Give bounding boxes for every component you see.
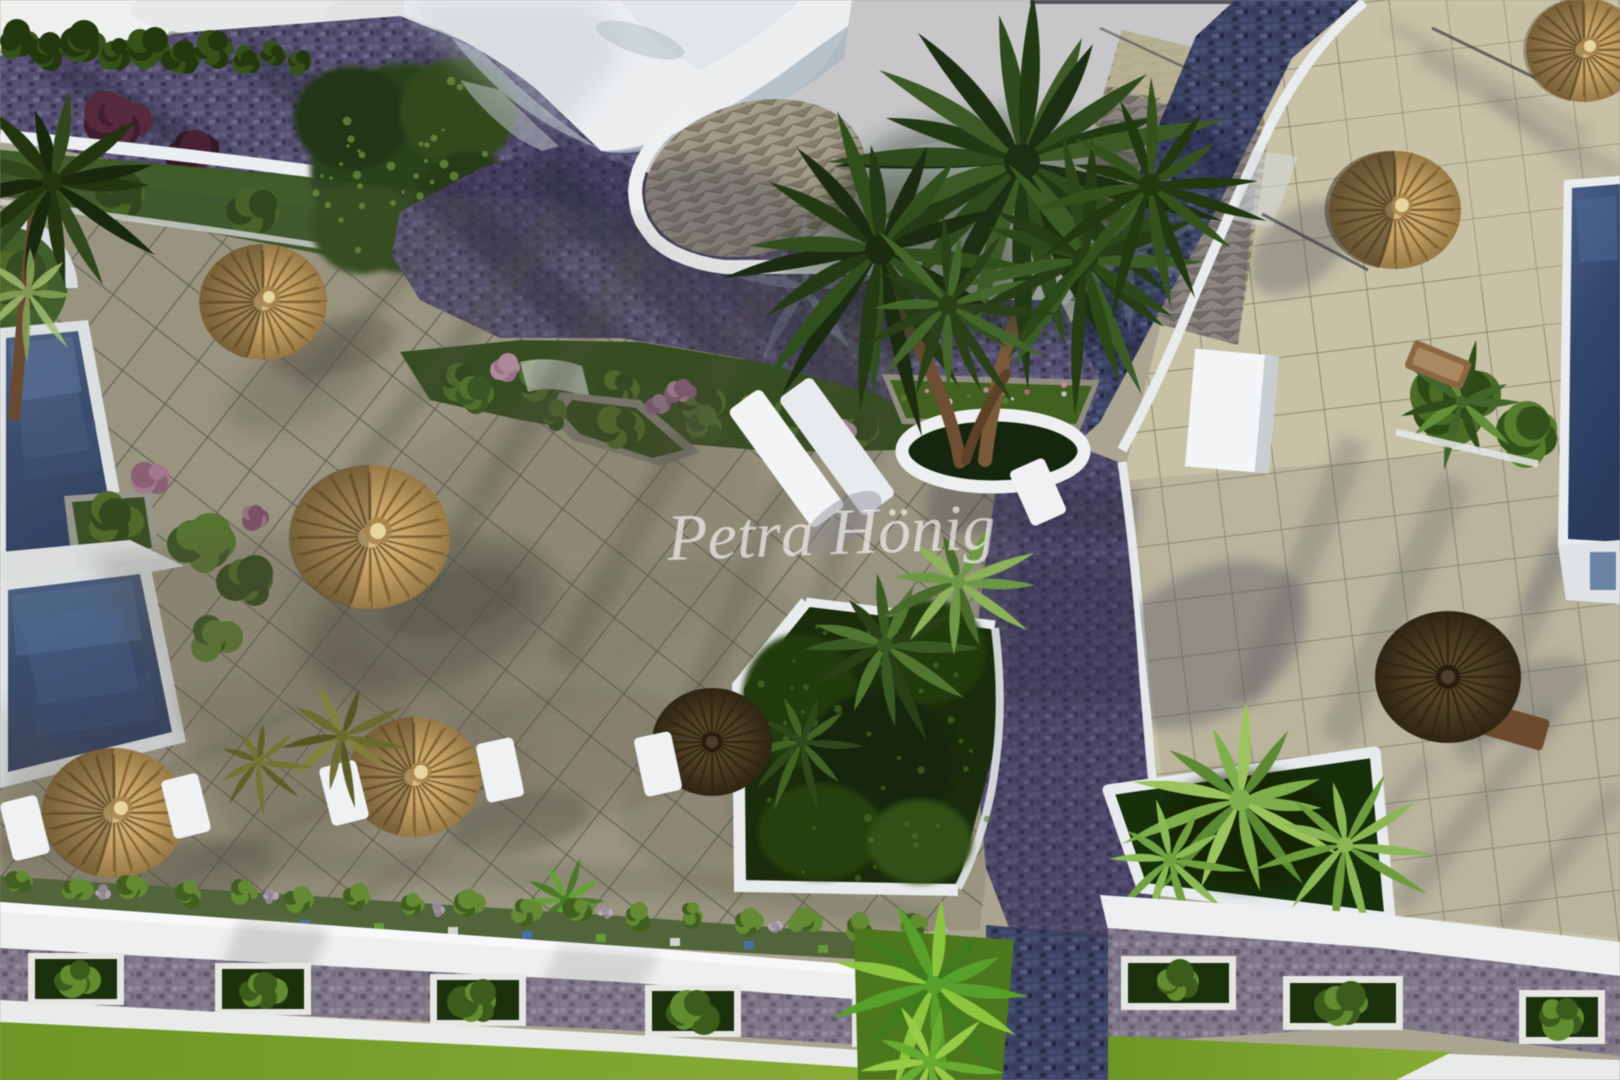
- svg-text:Petra Hönig: Petra Hönig: [665, 491, 996, 575]
